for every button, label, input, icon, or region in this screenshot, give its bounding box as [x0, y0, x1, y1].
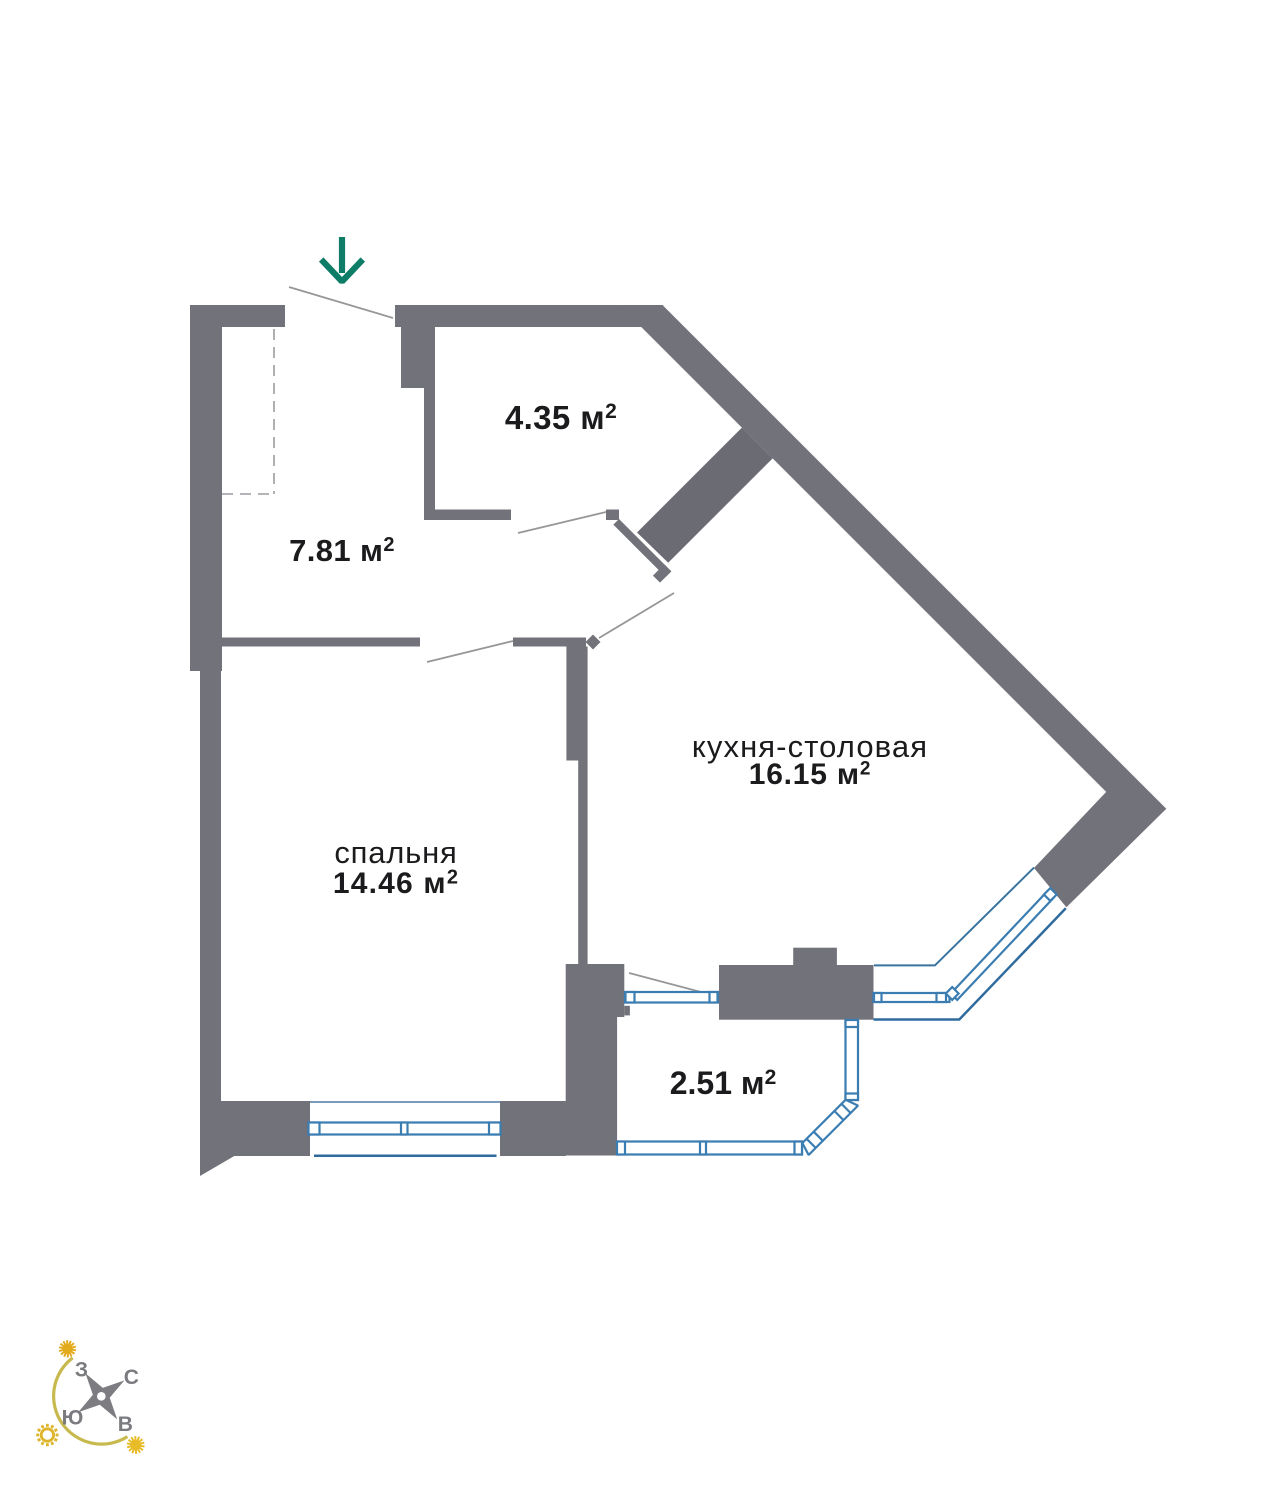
svg-text:14.46 м2: 14.46 м2: [333, 867, 459, 901]
svg-text:7.81 м2: 7.81 м2: [289, 533, 395, 568]
svg-text:16.15 м2: 16.15 м2: [749, 758, 872, 791]
svg-text:З: З: [75, 1359, 88, 1382]
svg-text:2.51 м2: 2.51 м2: [670, 1065, 777, 1101]
svg-text:В: В: [118, 1413, 133, 1436]
svg-text:С: С: [124, 1366, 139, 1389]
svg-text:4.35 м2: 4.35 м2: [505, 399, 617, 436]
svg-text:Ю: Ю: [62, 1407, 84, 1430]
svg-text:спальня: спальня: [334, 835, 457, 870]
